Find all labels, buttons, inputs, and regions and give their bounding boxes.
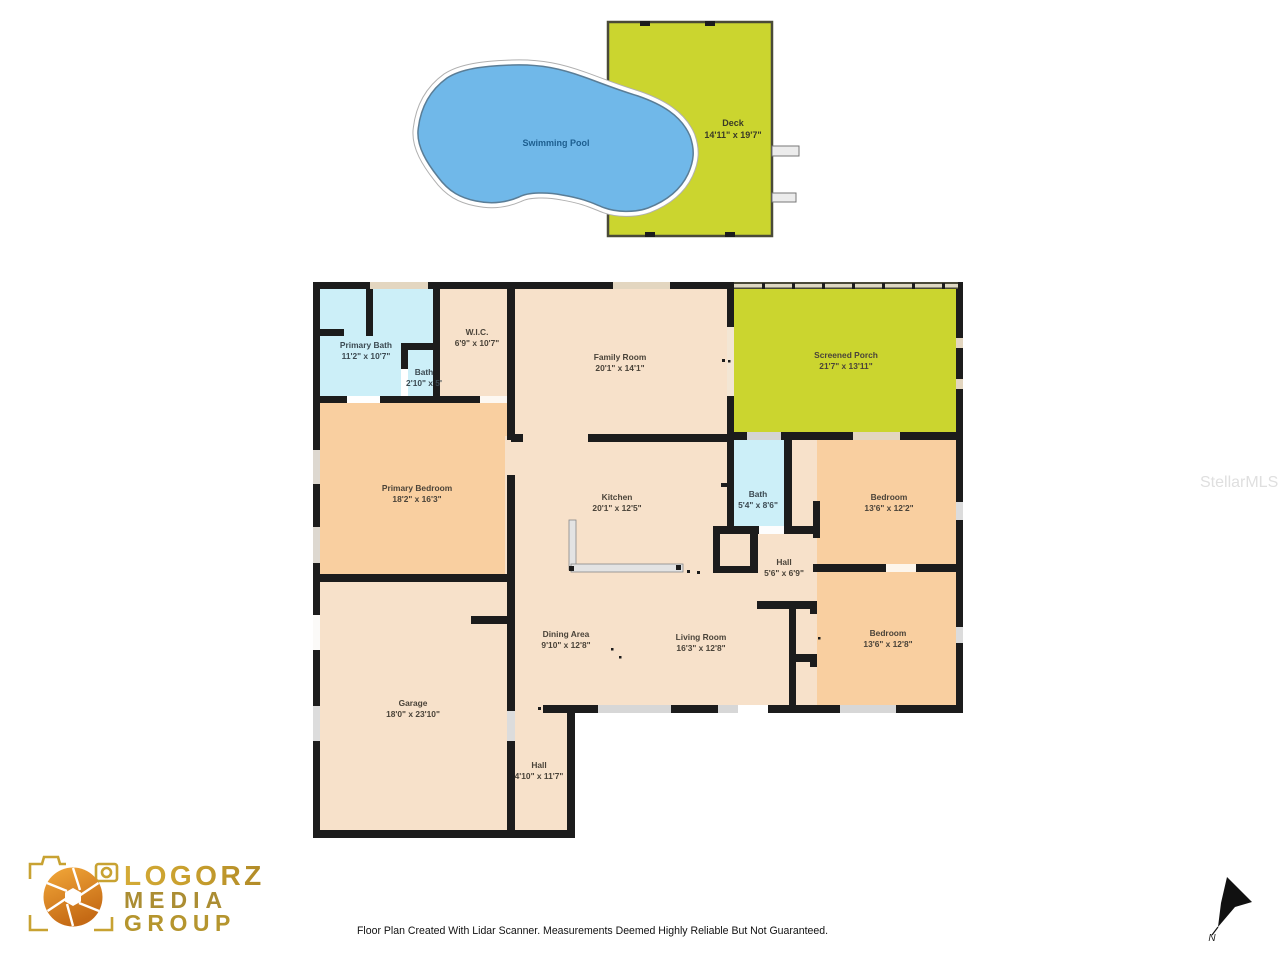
svg-text:13'6" x 12'2": 13'6" x 12'2"	[864, 503, 913, 513]
svg-text:4'10" x 11'7": 4'10" x 11'7"	[515, 771, 564, 781]
svg-text:5'4" x 8'6": 5'4" x 8'6"	[738, 500, 778, 510]
svg-text:11'2" x 10'7": 11'2" x 10'7"	[342, 351, 391, 361]
svg-text:Deck: Deck	[722, 118, 745, 128]
svg-text:2'10" x 5': 2'10" x 5'	[406, 378, 442, 388]
svg-text:20'1" x 12'5": 20'1" x 12'5"	[592, 503, 641, 513]
svg-text:Garage: Garage	[399, 698, 428, 708]
svg-text:Bedroom: Bedroom	[871, 492, 908, 502]
svg-text:Primary Bath: Primary Bath	[340, 340, 392, 350]
svg-text:5'6" x 6'9": 5'6" x 6'9"	[764, 568, 804, 578]
svg-text:18'0" x 23'10": 18'0" x 23'10"	[386, 709, 440, 719]
svg-text:Screened Porch: Screened Porch	[814, 350, 878, 360]
svg-text:14'11" x 19'7": 14'11" x 19'7"	[704, 130, 761, 140]
svg-text:18'2" x 16'3": 18'2" x 16'3"	[392, 494, 441, 504]
svg-text:Floor Plan Created With Lidar: Floor Plan Created With Lidar Scanner. M…	[357, 925, 828, 937]
svg-text:Hall: Hall	[531, 760, 546, 770]
svg-text:Bath: Bath	[415, 367, 434, 377]
svg-text:Kitchen: Kitchen	[602, 492, 633, 502]
svg-text:6'9" x 10'7": 6'9" x 10'7"	[455, 338, 500, 348]
svg-text:StellarMLS: StellarMLS	[1200, 474, 1278, 491]
svg-text:20'1" x 14'1": 20'1" x 14'1"	[595, 363, 644, 373]
svg-text:Dining Area: Dining Area	[543, 629, 590, 639]
svg-text:Bath: Bath	[749, 489, 768, 499]
svg-text:13'6" x 12'8": 13'6" x 12'8"	[863, 639, 912, 649]
svg-text:16'3" x 12'8": 16'3" x 12'8"	[676, 643, 725, 653]
svg-text:Bedroom: Bedroom	[870, 628, 907, 638]
svg-text:GROUP: GROUP	[124, 910, 236, 936]
svg-text:Primary Bedroom: Primary Bedroom	[382, 483, 452, 493]
svg-text:N: N	[1208, 933, 1216, 944]
svg-text:Swimming Pool: Swimming Pool	[522, 138, 589, 148]
svg-text:21'7" x 13'11": 21'7" x 13'11"	[819, 361, 872, 371]
svg-text:9'10" x 12'8": 9'10" x 12'8"	[541, 640, 590, 650]
svg-text:Family Room: Family Room	[594, 352, 647, 362]
svg-text:Living Room: Living Room	[676, 632, 727, 642]
svg-text:Hall: Hall	[776, 557, 791, 567]
svg-text:W.I.C.: W.I.C.	[466, 327, 489, 337]
